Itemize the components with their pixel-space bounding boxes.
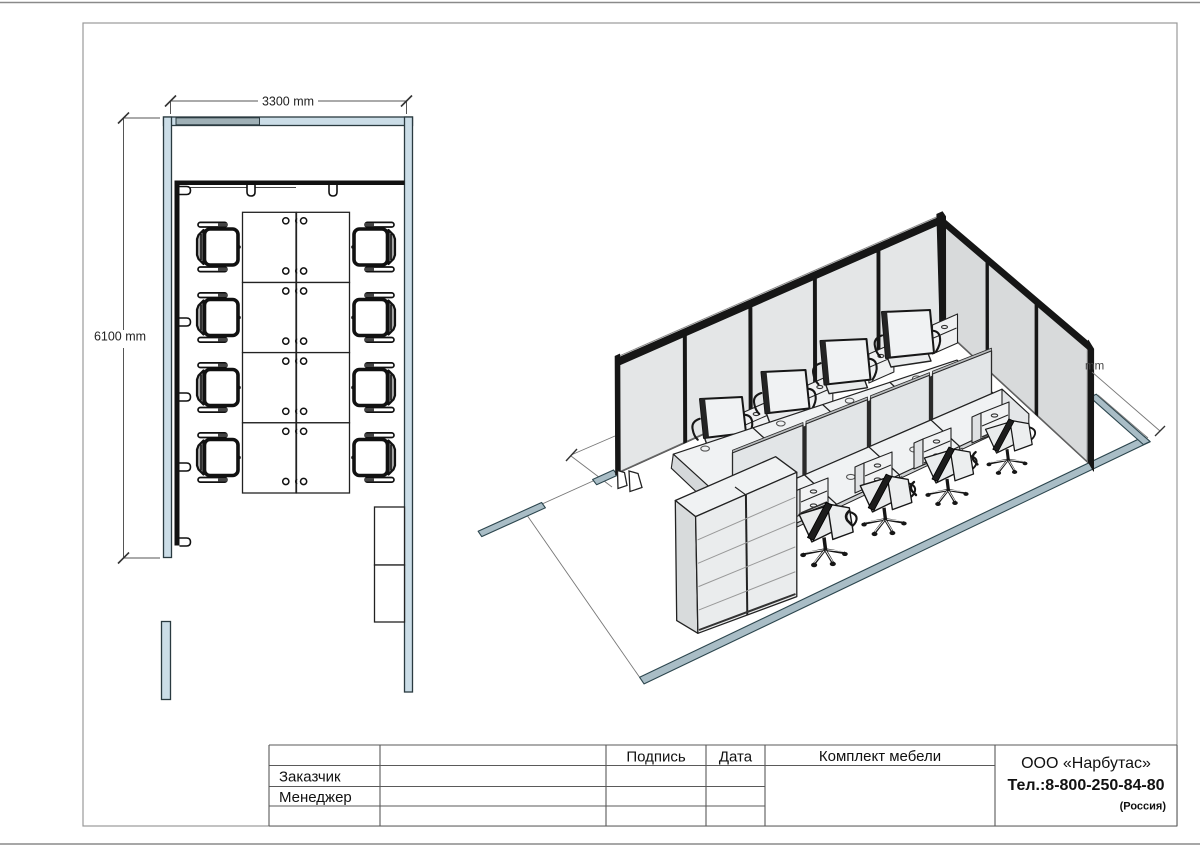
svg-text:Комплект мебели: Комплект мебели: [819, 748, 941, 765]
svg-text:Дата: Дата: [719, 749, 753, 766]
svg-text:ООО «Нарбутас»: ООО «Нарбутас»: [1021, 755, 1151, 772]
svg-text:mm: mm: [1085, 361, 1104, 373]
svg-text:Тел.:8-800-250-84-80: Тел.:8-800-250-84-80: [1007, 777, 1164, 794]
svg-text:Менеджер: Менеджер: [279, 789, 352, 806]
svg-text:3300 mm: 3300 mm: [262, 95, 314, 109]
svg-text:6100 mm: 6100 mm: [94, 330, 146, 344]
svg-text:Заказчик: Заказчик: [279, 769, 341, 786]
svg-text:Подпись: Подпись: [626, 749, 686, 766]
svg-text:(Россия): (Россия): [1120, 801, 1167, 813]
